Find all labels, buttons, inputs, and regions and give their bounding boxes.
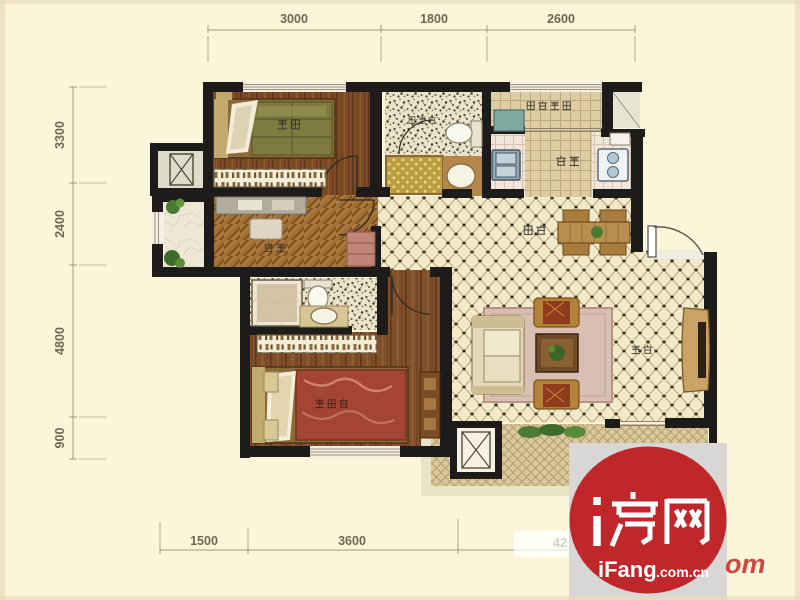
svg-text:iFang: iFang (598, 557, 657, 582)
svg-text:1800: 1800 (420, 12, 448, 26)
svg-text:3600: 3600 (338, 534, 366, 548)
svg-text:900: 900 (53, 428, 67, 449)
svg-text:3000: 3000 (280, 12, 308, 26)
svg-text:2400: 2400 (53, 210, 67, 238)
svg-text:2600: 2600 (547, 12, 575, 26)
svg-text:3300: 3300 (53, 121, 67, 149)
svg-text:om: om (725, 549, 766, 579)
svg-text:1500: 1500 (190, 534, 218, 548)
svg-text:4800: 4800 (53, 327, 67, 355)
svg-text:.com.cn: .com.cn (656, 564, 709, 580)
